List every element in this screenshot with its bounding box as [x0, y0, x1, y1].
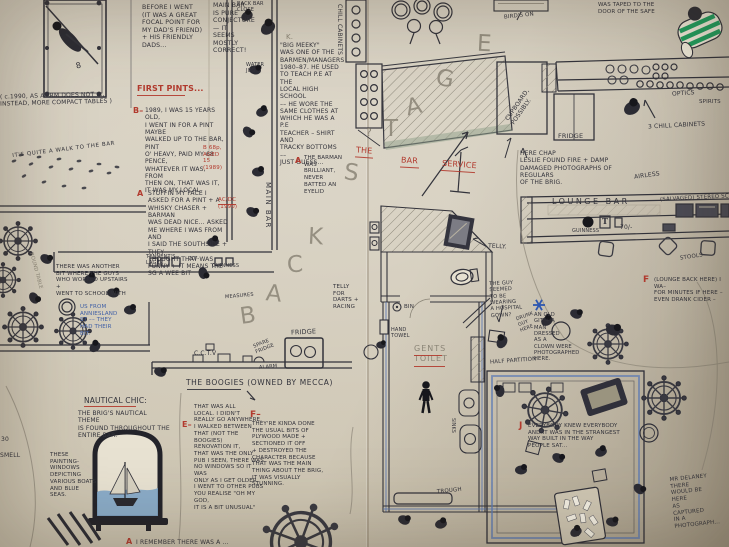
key-letter-f2: F–: [250, 410, 261, 421]
label-sinks: SINKS: [449, 418, 455, 433]
red-underline: [414, 366, 445, 367]
label-back-bar-close: BACK BAR CLOSE: [237, 1, 264, 13]
floor-letter-c: C: [286, 251, 304, 278]
label-fridge-center: FRIDGE: [291, 328, 317, 337]
floor-letter-k: K: [307, 224, 323, 251]
note-barman-brilliant: THE BARMAN WAS BRILLIANT, NEVER BATTED A…: [304, 155, 344, 195]
heading-the-boogies: THE BOOGIES (OWNED BY MECCA): [186, 378, 333, 387]
label-tennents-t: T: [602, 217, 608, 227]
note-b-margin: B 68p, AGED 15 (1989): [203, 145, 222, 172]
question-mark: ?: [366, 126, 372, 139]
marker-k: K.: [286, 33, 293, 42]
label-optics: OPTICS: [672, 89, 695, 98]
label-lounge-bar: LOUNGE BAR: [552, 197, 630, 207]
label-spirits: SPIRITS: [699, 99, 721, 106]
sailboat-window-painting: [88, 432, 168, 531]
note-big-meeky: "BIG MEEKY" WAS ONE OF THE BARMEN/MANAGE…: [280, 42, 342, 166]
label-guinness-lounge: GUINNESS: [572, 228, 599, 234]
pub-floorplan-photo: BEFORE I WENT (IT WAS A GREAT FOCAL POIN…: [0, 0, 729, 547]
floor-letter-a: A: [265, 280, 283, 308]
top-back-bar: [556, 57, 729, 118]
label-bar: BAR: [401, 156, 418, 167]
fragment-smell: SMELL: [0, 452, 20, 459]
heading-nautical-chic: NAUTICAL CHIC:: [84, 396, 147, 405]
label-bin: BIN: [404, 304, 414, 311]
heading-first-pints: FIRST PINTS...: [137, 84, 204, 94]
label-gents-toilet: GENTS TOILET: [414, 344, 448, 364]
drum-kit-sketch: [392, 0, 452, 44]
note-f-plywood: THEY'RE KINDA DONE THE USUAL BITS OF PLY…: [252, 421, 334, 488]
key-letter-e: E–: [182, 420, 192, 430]
pool-table-sketch: [44, 0, 106, 97]
red-underline: [218, 204, 236, 205]
restroom-man-silhouette: [420, 381, 433, 413]
green-hooped-barman: [667, 0, 728, 59]
red-underline: [137, 95, 185, 96]
note-delaney: MR DELANEY THERE WOULD BE HERE AS CAPTUR…: [669, 471, 729, 530]
label-water-jug: WATER JUG: [246, 62, 264, 74]
note-anniesland: US FROM ANNIESLAND ST –– THEY HAD THEIR …: [80, 304, 122, 338]
key-letter-b: B–: [133, 106, 143, 116]
label-main-bar: MAIN BAR: [263, 182, 272, 229]
label-hand-towel: HAND TOWEL: [391, 327, 410, 339]
label-guinness-main: GUINNESS: [212, 263, 239, 269]
footprints-trail: [11, 153, 119, 189]
key-letter-f-lounge: F: [643, 275, 649, 286]
label-tennents-lager: TENNENT'S LAGER: [146, 254, 176, 266]
key-letter-remember: A: [126, 537, 132, 547]
floor-letter-e: E: [476, 31, 492, 58]
note-taped-safe: WAS TAPED TO THE DOOR OF THE SAFE: [598, 2, 664, 15]
note-another-bit: THERE WAS ANOTHER BIT WHERE THE GUYS WHO…: [56, 264, 128, 298]
fragment-30: 30: [1, 436, 9, 443]
note-painting-windows: THESE PAINTING-WINDOWS DEPICTING VARIOUS…: [50, 452, 98, 499]
note-f-lounge: (LOUNGE BACK HERE) I WA– FOR MINUTES IF …: [654, 277, 729, 304]
underline: [187, 389, 241, 390]
note-nautical-theme: THE BRIG'S NAUTICAL THEME IS FOUND THROU…: [78, 410, 170, 439]
note-before-i-went: BEFORE I WENT (IT WAS A GREAT FOCAL POIN…: [142, 4, 212, 49]
note-telly-darts: TELLY FOR DARTS + RACING: [333, 284, 363, 311]
rope-sketch: [48, 512, 100, 545]
label-telly: TELLY.: [488, 243, 507, 251]
chill-cabinet-column: [346, 0, 382, 146]
note-old-git-clown: AN OLD GIT + A MAN DRESSED AS A CLOWN WE…: [534, 312, 576, 363]
key-letter-a2: A: [295, 156, 301, 166]
note-lounge-fire-photos: HERE CHAP LESLIE FOUND FIRE + DAMP DAMAG…: [520, 150, 632, 187]
label-seventy-main: 70/-: [188, 256, 199, 263]
floor-letter-t: T: [384, 116, 398, 142]
note-remember: I REMEMBER THERE WAS A ...: [136, 539, 256, 546]
label-cctv: C.C.T.V: [194, 350, 216, 357]
key-letter-a: A: [137, 189, 143, 199]
red-underline: [84, 406, 136, 407]
key-letter-j: J: [519, 421, 523, 432]
red-underline: [414, 355, 442, 356]
label-the: THE: [356, 145, 373, 156]
label-seventy-lounge: 70/-: [620, 224, 632, 231]
label-fridge-top: FRIDGE: [558, 133, 583, 141]
blue-star-mark: [533, 300, 545, 310]
note-j-everybody-knew: EVERYBODY KNEW EVERYBODY AND IT WAS IN T…: [528, 423, 630, 450]
